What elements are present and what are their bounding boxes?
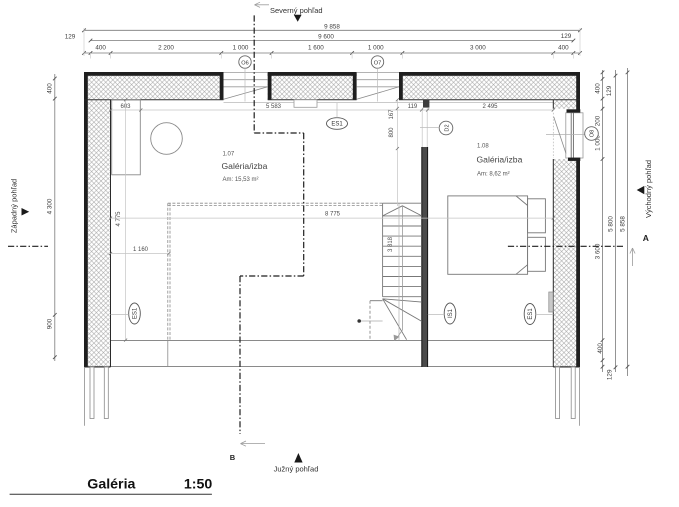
svg-text:4 300: 4 300 — [47, 198, 54, 214]
svg-text:2 200: 2 200 — [158, 44, 174, 51]
svg-text:2 495: 2 495 — [482, 104, 498, 110]
svg-text:9 858: 9 858 — [324, 23, 340, 30]
svg-text:ES1: ES1 — [331, 122, 343, 128]
svg-text:1 000: 1 000 — [368, 44, 384, 51]
svg-text:5 858: 5 858 — [620, 216, 627, 232]
svg-text:Am: 8,62 m²: Am: 8,62 m² — [477, 171, 510, 177]
svg-text:Južný pohľad: Južný pohľad — [274, 464, 319, 473]
svg-text:129: 129 — [607, 369, 614, 380]
svg-text:400: 400 — [597, 343, 604, 354]
svg-text:1 160: 1 160 — [133, 247, 149, 253]
svg-text:119: 119 — [408, 104, 418, 110]
svg-text:5 800: 5 800 — [608, 216, 615, 232]
svg-text:3 000: 3 000 — [470, 44, 486, 51]
svg-text:200: 200 — [595, 115, 602, 126]
svg-text:400: 400 — [95, 44, 106, 51]
svg-text:Východný pohľad: Východný pohľad — [644, 160, 653, 218]
svg-text:3 818: 3 818 — [388, 236, 394, 252]
svg-text:129: 129 — [561, 33, 572, 40]
svg-text:B: B — [230, 453, 236, 462]
svg-text:ES1: ES1 — [133, 307, 139, 319]
svg-text:1 000: 1 000 — [233, 44, 249, 51]
svg-text:O8: O8 — [590, 130, 596, 137]
svg-text:Galéria/izba: Galéria/izba — [222, 161, 268, 171]
svg-text:Galéria/izba: Galéria/izba — [477, 154, 523, 164]
svg-text:Severný pohľad: Severný pohľad — [270, 6, 323, 15]
svg-text:400: 400 — [558, 44, 569, 51]
svg-text:IS1: IS1 — [448, 308, 454, 318]
svg-text:1.08: 1.08 — [477, 144, 489, 150]
svg-text:A: A — [643, 233, 649, 243]
svg-text:1.07: 1.07 — [223, 152, 235, 158]
svg-text:167: 167 — [389, 109, 395, 120]
svg-text:O7: O7 — [374, 60, 381, 66]
svg-text:Galéria: Galéria — [87, 477, 135, 493]
svg-text:129: 129 — [65, 34, 76, 41]
svg-text:9 600: 9 600 — [318, 34, 334, 41]
svg-text:900: 900 — [47, 318, 54, 329]
svg-text:400: 400 — [595, 83, 602, 94]
svg-text:3 600: 3 600 — [595, 243, 602, 259]
svg-text:Západný pohľad: Západný pohľad — [10, 179, 19, 233]
svg-text:4 775: 4 775 — [116, 211, 122, 227]
svg-text:Am: 15,53 m²: Am: 15,53 m² — [223, 177, 259, 183]
svg-text:800: 800 — [389, 127, 395, 138]
svg-text:8 775: 8 775 — [325, 211, 341, 217]
svg-text:400: 400 — [47, 83, 54, 94]
svg-text:129: 129 — [606, 85, 613, 96]
svg-text:D2: D2 — [444, 124, 450, 131]
svg-text:O6: O6 — [241, 60, 248, 66]
svg-text:1:50: 1:50 — [184, 477, 213, 493]
svg-text:5 583: 5 583 — [266, 104, 282, 110]
svg-text:1 600: 1 600 — [308, 44, 324, 51]
svg-text:ES1: ES1 — [528, 308, 534, 320]
